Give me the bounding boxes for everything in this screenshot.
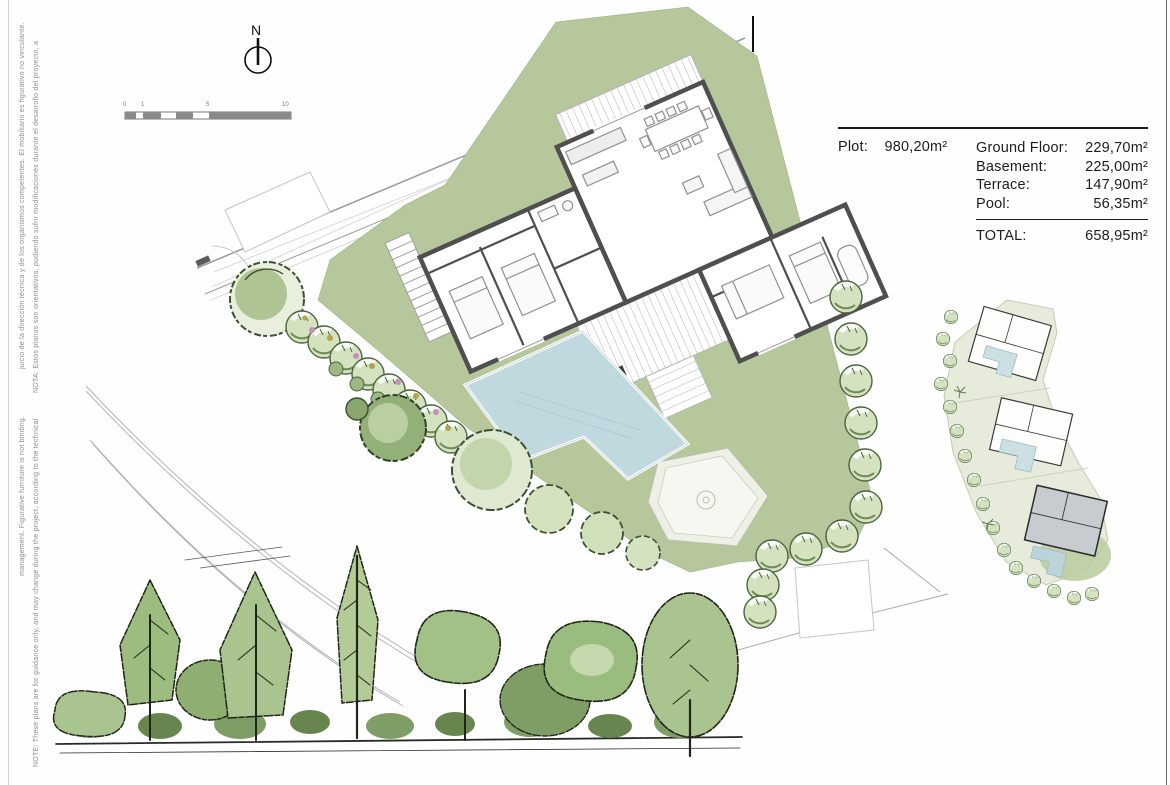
area-row-total: TOTAL: 658,95m² <box>976 228 1148 244</box>
row-label: Basement: <box>976 158 1047 177</box>
area-row-basement: Basement: 225,00m² <box>976 158 1148 177</box>
note-english-line2: management. Figurative furniture is not … <box>19 416 26 576</box>
scale-bar <box>125 112 291 119</box>
note-english-line1: NOTE: These plans are for guidance only,… <box>33 418 40 767</box>
scale-tick-0: 0 <box>123 102 126 108</box>
row-value: 229,70m² <box>1085 139 1148 158</box>
site-plan-svg <box>0 0 1170 785</box>
row-value: 147,90m² <box>1085 176 1148 195</box>
row-value: 225,00m² <box>1085 158 1148 177</box>
table-rule-top <box>838 127 1148 129</box>
table-rule-total <box>976 219 1148 220</box>
plot-value: 980,20m² <box>884 139 947 155</box>
sheet-border-right <box>1166 0 1167 785</box>
total-value: 658,95m² <box>1085 228 1148 244</box>
location-inset <box>934 300 1111 605</box>
row-label: Terrace: <box>976 176 1030 195</box>
area-row-pool: Pool: 56,35m² <box>976 195 1148 214</box>
row-label: Ground Floor: <box>976 139 1068 158</box>
north-arrow-icon <box>245 38 271 73</box>
area-table: Plot: 980,20m² Ground Floor: 229,70m² Ba… <box>838 127 1148 244</box>
note-spanish-line2: juicio de la dirección técnica y de los … <box>19 22 26 369</box>
utility-pad <box>795 560 874 638</box>
area-row-terrace: Terrace: 147,90m² <box>976 176 1148 195</box>
note-spanish-line1: NOTA: Estos planos son orientativos, pud… <box>33 41 40 393</box>
drawing-sheet: NOTA: Estos planos son orientativos, pud… <box>0 0 1170 785</box>
row-value: 56,35m² <box>1093 195 1148 214</box>
scale-tick-5: 5 <box>206 102 209 108</box>
scale-tick-1: 1 <box>141 102 144 108</box>
total-label: TOTAL: <box>976 228 1027 244</box>
row-label: Pool: <box>976 195 1010 214</box>
sheet-border-left <box>8 0 9 785</box>
north-label: N <box>251 22 261 38</box>
scale-tick-10: 10 <box>282 102 289 108</box>
plot-label: Plot: <box>838 139 868 155</box>
plot-area: Plot: 980,20m² <box>838 139 947 213</box>
area-row-ground-floor: Ground Floor: 229,70m² <box>976 139 1148 158</box>
